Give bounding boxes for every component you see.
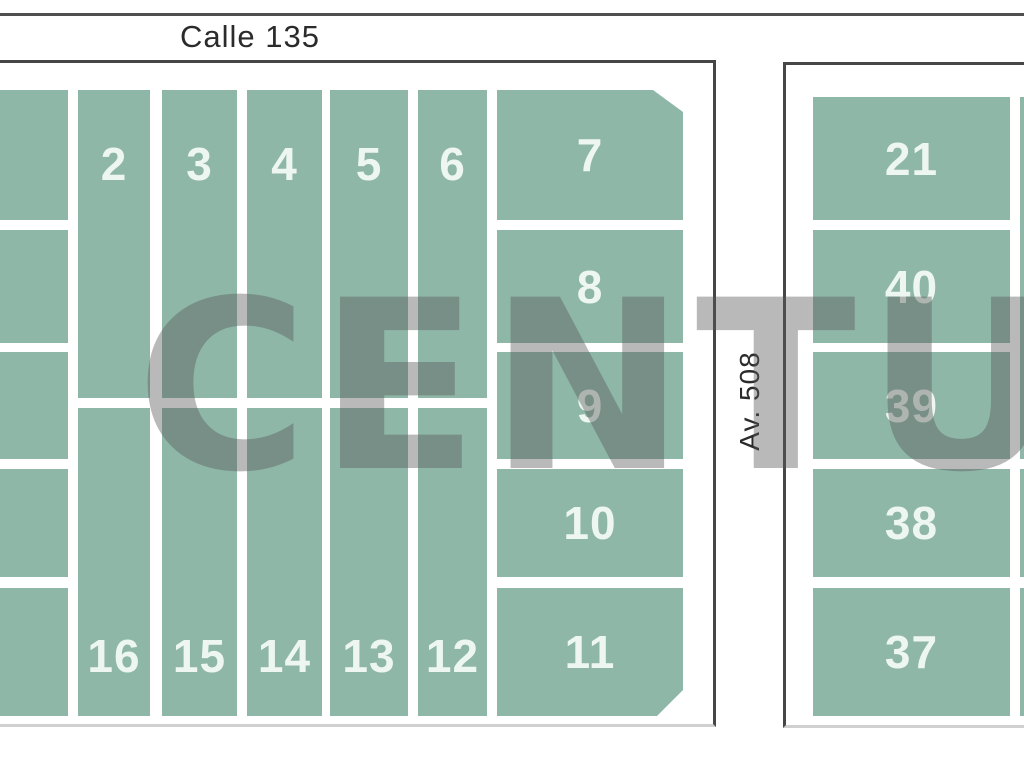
- lot-number: 3: [186, 140, 213, 188]
- lot-13: 13: [330, 408, 408, 716]
- lot-number: 10: [563, 499, 616, 547]
- lot-number: 21: [885, 135, 938, 183]
- lot-number: 12: [426, 632, 479, 680]
- lot-number: 5: [356, 140, 383, 188]
- lot-9: 9: [497, 352, 683, 459]
- lot-15: 15: [162, 408, 237, 716]
- lot-number: 2: [101, 140, 128, 188]
- lot-number: 13: [342, 632, 395, 680]
- calle-135-label: Calle 135: [180, 19, 320, 55]
- lot-number: 15: [173, 632, 226, 680]
- lot-40: 40: [813, 230, 1010, 343]
- lot-8: 8: [497, 230, 683, 343]
- lot-4: 4: [247, 90, 322, 398]
- lot-number: 11: [565, 628, 616, 676]
- subdivision-lot-map: Calle 135 2 3 4 5 6 16 15 14 13 12 7 8: [0, 0, 1024, 768]
- lot-number: 4: [271, 140, 298, 188]
- lot-5: 5: [330, 90, 408, 398]
- lot-38: 38: [813, 469, 1010, 577]
- lot-number: 7: [577, 131, 604, 179]
- lot-2: 2: [78, 90, 150, 398]
- lot-unlabeled: [0, 352, 68, 459]
- lot-number: 16: [87, 632, 140, 680]
- lot-unlabeled: [1020, 588, 1024, 716]
- lot-12: 12: [418, 408, 487, 716]
- lot-unlabeled: [0, 469, 68, 577]
- lot-unlabeled: [1020, 97, 1024, 459]
- lot-10: 10: [497, 469, 683, 577]
- calle-135-street-line: [0, 13, 1024, 16]
- lot-14: 14: [247, 408, 322, 716]
- lot-number: 38: [885, 499, 938, 547]
- lot-37: 37: [813, 588, 1010, 716]
- lot-number: 6: [439, 140, 466, 188]
- lot-number: 14: [258, 632, 311, 680]
- av-508-label: Av. 508: [734, 351, 766, 450]
- lot-11: 11: [497, 588, 683, 716]
- lot-21: 21: [813, 97, 1010, 220]
- lot-number: 8: [577, 263, 604, 311]
- lot-3: 3: [162, 90, 237, 398]
- lot-number: 37: [885, 628, 938, 676]
- lot-number: 9: [577, 382, 604, 430]
- lot-unlabeled: [0, 588, 68, 716]
- lot-unlabeled: [1020, 469, 1024, 577]
- lot-6: 6: [418, 90, 487, 398]
- lot-7: 7: [497, 90, 683, 220]
- lot-unlabeled: [0, 90, 68, 220]
- lot-number: 39: [885, 382, 938, 430]
- lot-39: 39: [813, 352, 1010, 459]
- lot-unlabeled: [0, 230, 68, 343]
- lot-16: 16: [78, 408, 150, 716]
- lot-number: 40: [885, 263, 938, 311]
